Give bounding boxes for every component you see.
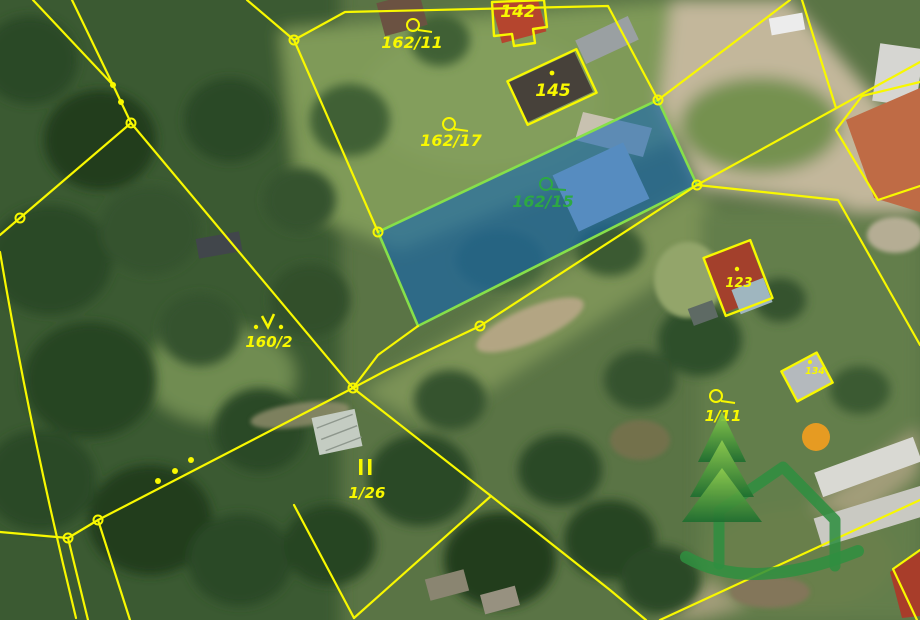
parcel-label-162-17: 162/17 — [420, 131, 482, 150]
parcel-label-162-11: 162/11 — [381, 33, 443, 52]
building-label-134: 134 — [805, 366, 825, 377]
parcel-label-160-2: 160/2 — [245, 333, 292, 351]
map-viewport[interactable]: 142 162/11 145 162/17 162/15 160/2 1/26 … — [0, 0, 920, 620]
building-label-145: 145 — [535, 81, 571, 101]
parcel-label-162-15: 162/15 — [512, 192, 574, 211]
aerial-imagery — [0, 0, 920, 620]
logo-sun-icon — [802, 423, 830, 451]
building-label-142: 142 — [500, 2, 536, 22]
building-label-123: 123 — [725, 276, 752, 291]
cadastral-map: 142 162/11 145 162/17 162/15 160/2 1/26 … — [0, 0, 920, 620]
parcel-label-1-26: 1/26 — [349, 484, 386, 502]
